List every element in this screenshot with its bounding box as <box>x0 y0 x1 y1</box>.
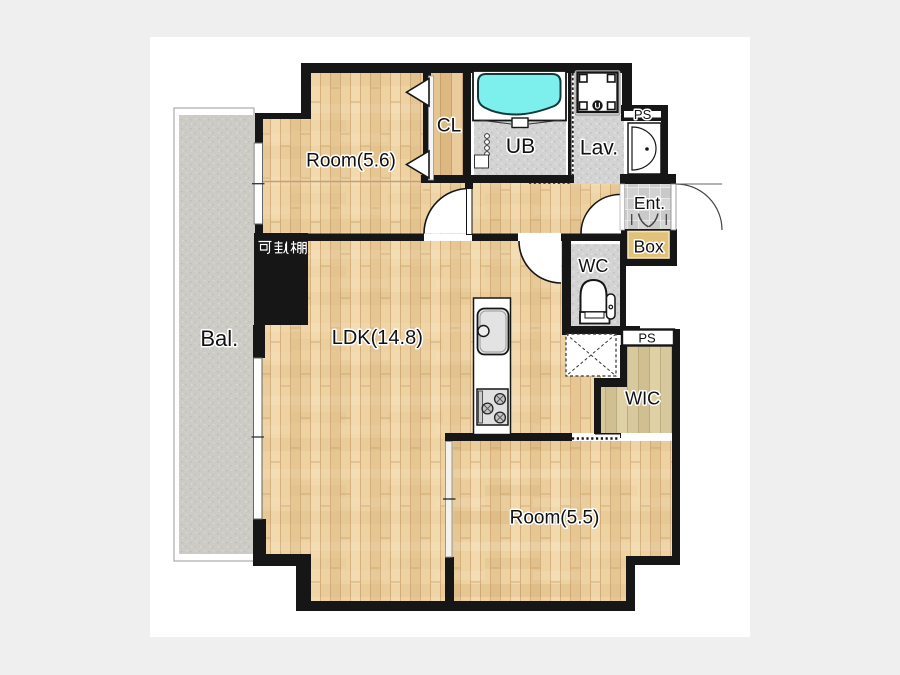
svg-text:Room(5.6): Room(5.6) <box>306 151 396 172</box>
svg-text:Room(5.5): Room(5.5) <box>510 508 600 529</box>
svg-text:WC: WC <box>578 256 608 276</box>
svg-text:Box: Box <box>634 237 664 257</box>
svg-text:Lav.: Lav. <box>580 137 618 160</box>
svg-text:PS: PS <box>634 107 652 122</box>
svg-text:LDK(14.8): LDK(14.8) <box>332 327 423 349</box>
svg-text:WIC: WIC <box>625 388 660 408</box>
svg-text:Ent.: Ent. <box>634 193 665 213</box>
svg-text:Bal.: Bal. <box>200 326 238 351</box>
svg-text:UB: UB <box>506 135 535 158</box>
svg-text:PS: PS <box>638 331 656 346</box>
svg-text:CL: CL <box>437 115 461 136</box>
